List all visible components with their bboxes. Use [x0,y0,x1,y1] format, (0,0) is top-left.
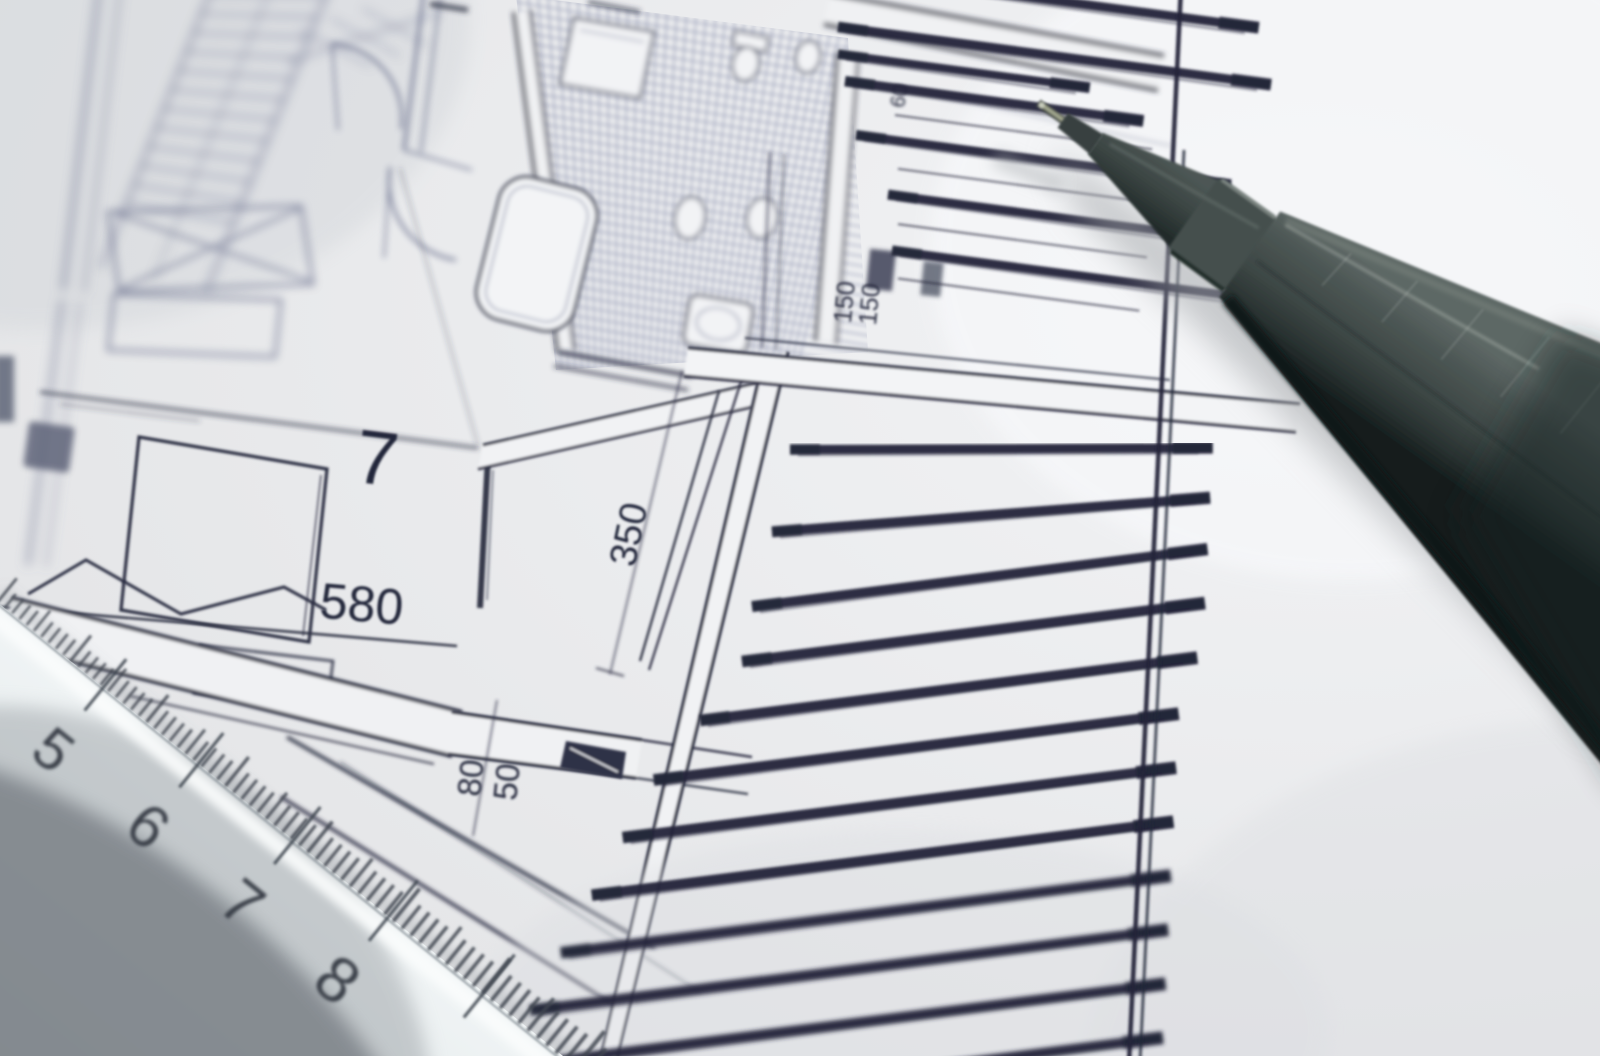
svg-text:80: 80 [450,758,491,798]
svg-text:50: 50 [486,762,527,802]
svg-text:150: 150 [854,282,886,326]
svg-text:580: 580 [318,573,406,636]
